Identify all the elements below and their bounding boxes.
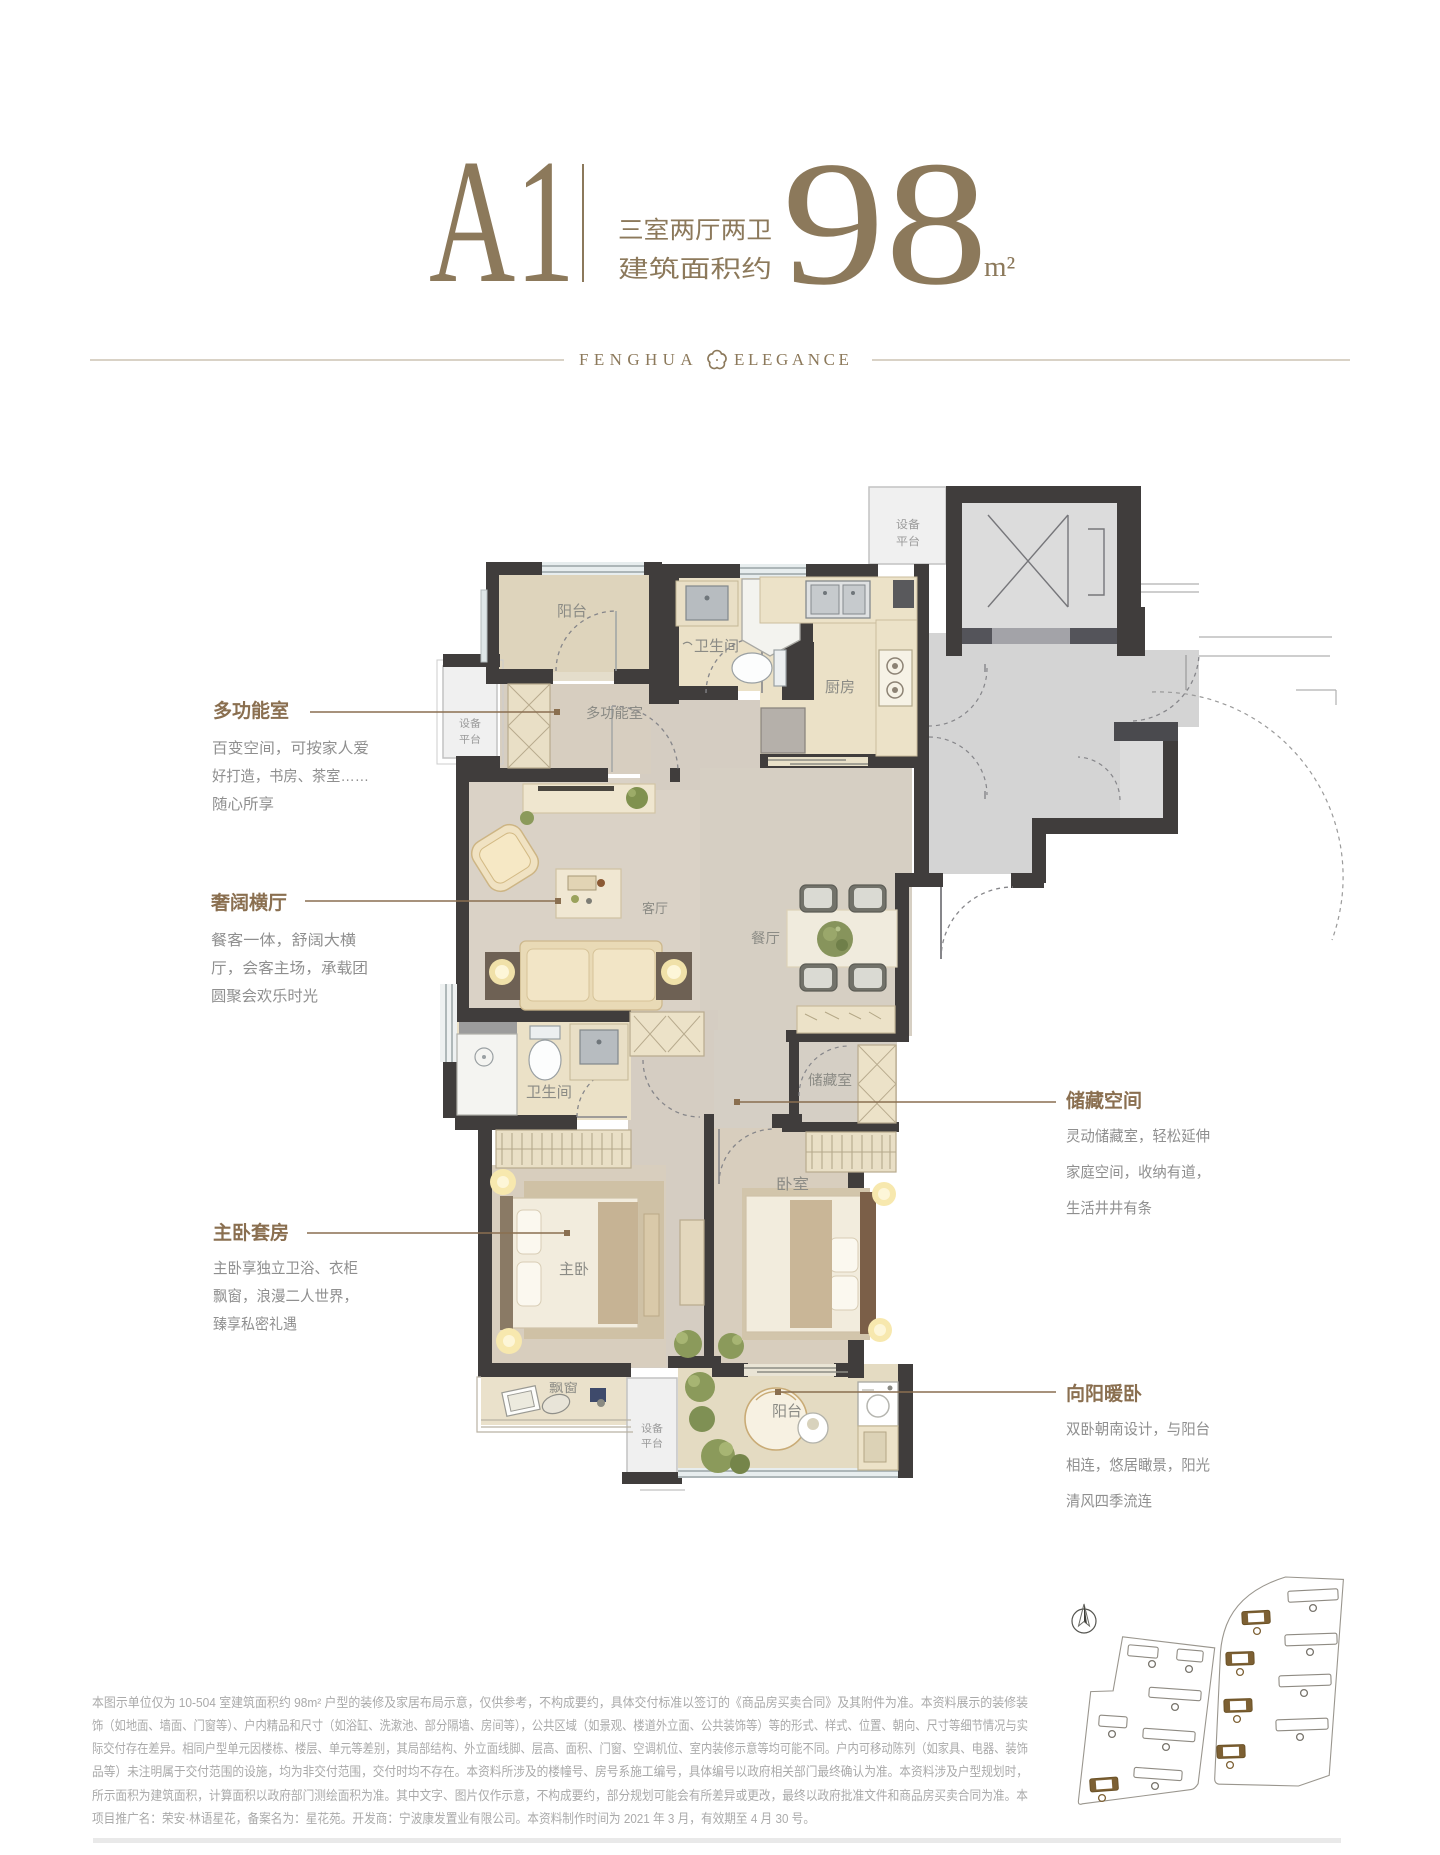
svg-text:多功能室: 多功能室 <box>586 705 643 721</box>
svg-text:设备: 设备 <box>641 1422 663 1435</box>
svg-text:卫生间: 卫生间 <box>694 638 739 655</box>
svg-text:圆聚会欢乐时光: 圆聚会欢乐时光 <box>211 988 318 1005</box>
svg-text:卧室: 卧室 <box>776 1176 809 1193</box>
svg-text:设备: 设备 <box>896 517 920 531</box>
svg-text:飘窗，浪漫二人世界，: 飘窗，浪漫二人世界， <box>213 1287 358 1305</box>
svg-text:厨房: 厨房 <box>825 679 855 696</box>
svg-text:臻享私密礼遇: 臻享私密礼遇 <box>213 1316 297 1333</box>
svg-text:双卧朝南设计，与阳台: 双卧朝南设计，与阳台 <box>1066 1421 1210 1438</box>
svg-text:主卧: 主卧 <box>559 1261 589 1278</box>
svg-text:98: 98 <box>782 124 988 322</box>
svg-text:饰（如地面、墙面、门窗等）、户内精品和尺寸（如浴缸、洗漱池、: 饰（如地面、墙面、门窗等）、户内精品和尺寸（如浴缸、洗漱池、部分隔墙、房间等），… <box>92 1718 1028 1733</box>
svg-text:客厅: 客厅 <box>642 901 668 916</box>
svg-text:厅，会客主场，承载团: 厅，会客主场，承载团 <box>211 960 368 977</box>
svg-text:平台: 平台 <box>641 1437 663 1450</box>
svg-text:际交付存在差异。相同户型单元因楼栋、楼层、单元等差别，其局部: 际交付存在差异。相同户型单元因楼栋、楼层、单元等差别，其局部结构、外立面线脚、层… <box>92 1741 1028 1756</box>
svg-text:项目推广名：荣安·林语星花，备案名为：星花苑。开发商：宁波康: 项目推广名：荣安·林语星花，备案名为：星花苑。开发商：宁波康发置业有限公司。本资… <box>92 1811 815 1826</box>
svg-text:卫生间: 卫生间 <box>526 1084 572 1101</box>
svg-text:主卧享独立卫浴、衣柜: 主卧享独立卫浴、衣柜 <box>213 1260 358 1277</box>
svg-text:奢阔横厅: 奢阔横厅 <box>210 891 287 914</box>
svg-text:餐客一体，舒阔大横: 餐客一体，舒阔大横 <box>211 932 356 949</box>
svg-text:储藏空间: 储藏空间 <box>1066 1089 1142 1112</box>
svg-text:所示面积为建筑面积，计算面积以政府部门测绘面积为准。其中文字: 所示面积为建筑面积，计算面积以政府部门测绘面积为准。其中文字、图片仅作示意，不构… <box>92 1788 1028 1803</box>
svg-text:相连，悠居瞰景，阳光: 相连，悠居瞰景，阳光 <box>1066 1457 1210 1474</box>
svg-text:生活井井有条: 生活井井有条 <box>1066 1200 1152 1217</box>
svg-text:本图示单位仅为 10-504 室建筑面积约 98m² 户型的: 本图示单位仅为 10-504 室建筑面积约 98m² 户型的装修及家居布局示意，… <box>92 1695 1028 1710</box>
svg-text:向阳暖卧: 向阳暖卧 <box>1066 1382 1142 1405</box>
svg-text:三室两厅两卫: 三室两厅两卫 <box>618 217 772 244</box>
svg-text:m²: m² <box>984 251 1016 283</box>
svg-text:多功能室: 多功能室 <box>213 699 289 722</box>
svg-text:好打造，书房、茶室……: 好打造，书房、茶室…… <box>212 768 369 785</box>
svg-text:百变空间，可按家人爱: 百变空间，可按家人爱 <box>212 740 369 757</box>
svg-text:飘窗: 飘窗 <box>549 1381 578 1395</box>
svg-text:灵动储藏室，轻松延伸: 灵动储藏室，轻松延伸 <box>1066 1128 1210 1145</box>
svg-text:阳台: 阳台 <box>772 1403 802 1420</box>
svg-text:餐厅: 餐厅 <box>751 930 780 946</box>
svg-text:平台: 平台 <box>459 733 481 746</box>
svg-text:阳台: 阳台 <box>557 603 587 620</box>
svg-text:储藏室: 储藏室 <box>808 1072 852 1088</box>
svg-text:品等）未注明属于交付范围的设施，均为非交付范围，交付时均不存: 品等）未注明属于交付范围的设施，均为非交付范围，交付时均不存在。本资料所涉及的楼… <box>92 1764 1028 1779</box>
svg-text:随心所享: 随心所享 <box>212 796 274 813</box>
svg-text:A1: A1 <box>429 122 575 320</box>
svg-text:设备: 设备 <box>459 717 481 730</box>
svg-text:平台: 平台 <box>896 534 920 548</box>
svg-text:家庭空间，收纳有道，: 家庭空间，收纳有道， <box>1066 1164 1210 1181</box>
svg-text:建筑面积约: 建筑面积约 <box>618 256 772 283</box>
svg-text:清风四季流连: 清风四季流连 <box>1066 1493 1152 1510</box>
svg-text:主卧套房: 主卧套房 <box>213 1221 289 1244</box>
